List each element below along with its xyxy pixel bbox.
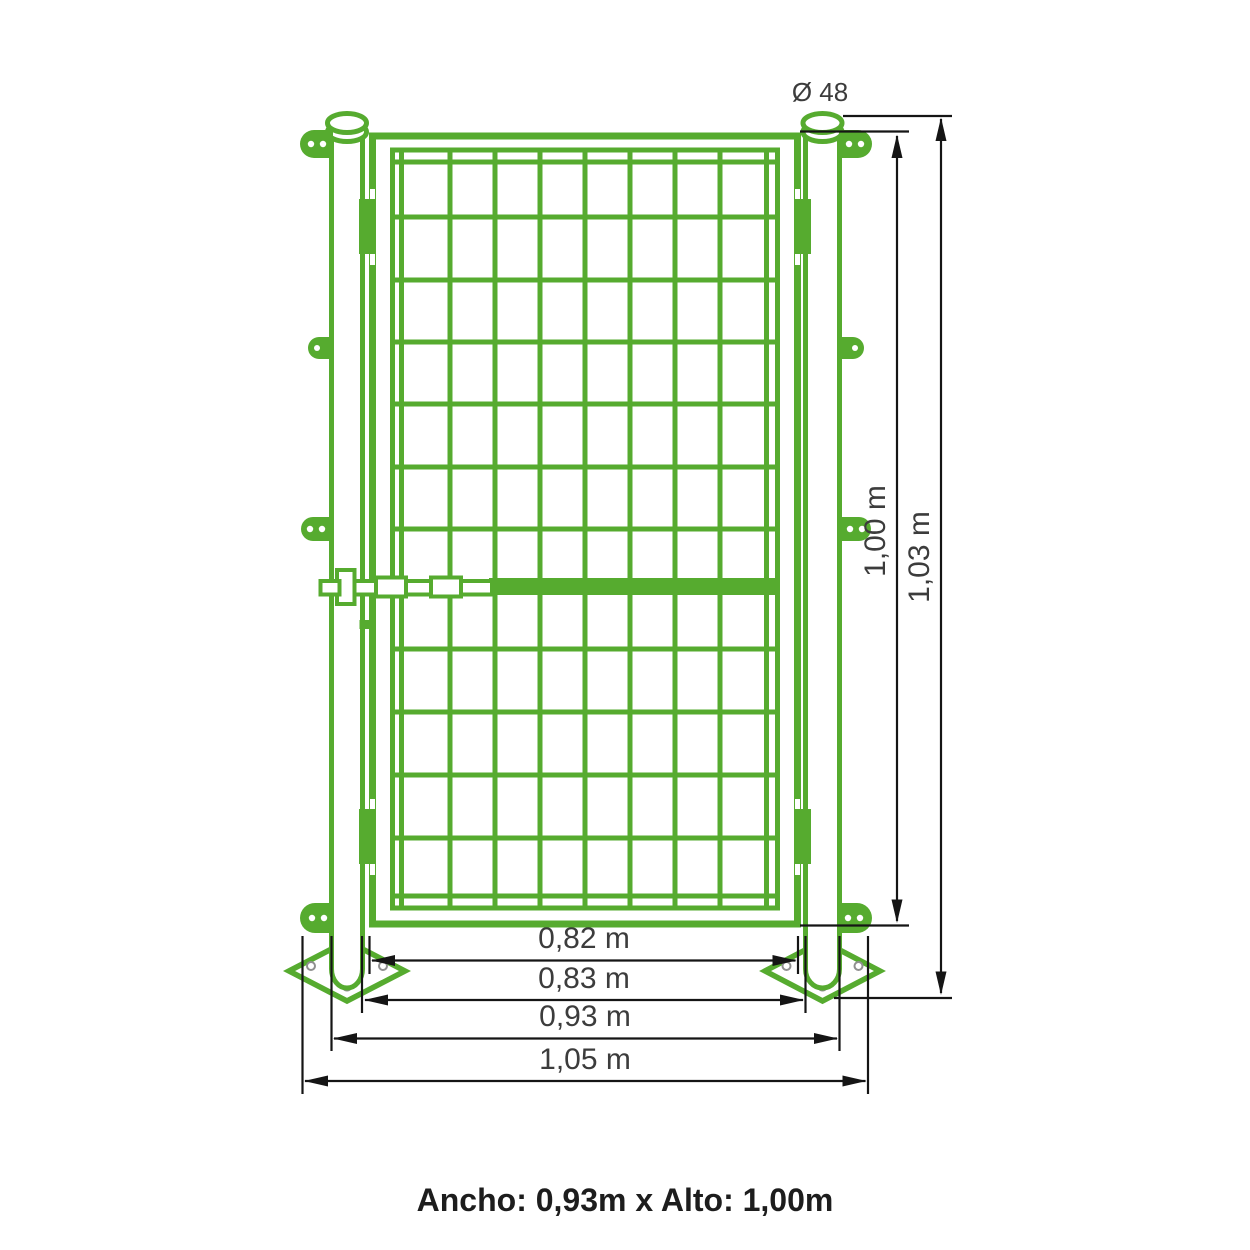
dimension-label-height-gate: 1,00 m [859, 485, 892, 577]
left-post-cap-top [328, 114, 367, 133]
bracket-hole [858, 141, 864, 147]
arrow-up [936, 118, 947, 142]
arrow-left [304, 1076, 328, 1087]
dimension-label-width-opening: 0,82 m [538, 922, 630, 955]
latch-rod [459, 581, 492, 595]
left-bottom-hinge [359, 809, 375, 864]
latch-keeper [360, 620, 375, 629]
arrow-up [892, 135, 903, 159]
left-post-bottom [332, 948, 363, 988]
dimension-label-height-total: 1,03 m [903, 511, 936, 603]
bracket-hole [847, 526, 853, 532]
bracket-hole [321, 915, 327, 921]
bracket-hole [309, 915, 315, 921]
arrow-right [843, 1076, 867, 1087]
arrow-right [814, 1033, 838, 1044]
right-single-hole-tab [839, 337, 864, 359]
dimension-label-width-total: 1,05 m [539, 1043, 631, 1076]
left-post-body [331, 132, 363, 960]
latch-assembly [321, 570, 778, 629]
page-title: Ancho: 0,93m x Alto: 1,00m [417, 1182, 834, 1218]
left-bottom-bracket [300, 903, 333, 933]
arrow-left [333, 1033, 357, 1044]
bracket-hole [314, 345, 320, 351]
left-top-hinge [359, 199, 375, 254]
right-bottom-hinge [795, 809, 811, 864]
post-diameter-label: Ø 48 [792, 77, 848, 107]
bracket-hole [845, 915, 851, 921]
plate-hole [855, 962, 863, 970]
right-post-cap-top [803, 114, 842, 133]
right-top-bracket [839, 130, 872, 158]
arrow-left [364, 995, 388, 1006]
left-single-hole-tab [308, 337, 333, 359]
arrow-down [936, 972, 947, 996]
right-post-bottom [806, 948, 840, 988]
bracket-hole [846, 141, 852, 147]
right-top-hinge [795, 199, 811, 254]
bracket-hole [857, 915, 863, 921]
mesh-panel [393, 150, 778, 908]
left-top-bracket [300, 130, 333, 158]
gate-dimension-diagram: 1,00 m 1,03 m 0,82 m 0,83 m 0,93 m 1,05 … [0, 0, 1250, 1250]
bracket-hole [307, 526, 313, 532]
bracket-hole [852, 345, 858, 351]
arrow-down [892, 900, 903, 924]
left-mid-bracket [301, 517, 333, 541]
dimension-label-width-between-posts: 0,83 m [538, 962, 630, 995]
middle-rail [489, 578, 778, 595]
plate-hole [307, 962, 315, 970]
bracket-hole [319, 526, 325, 532]
latch-guide-block [376, 578, 406, 597]
gate-dimension-diagram-page: 1,00 m 1,03 m 0,82 m 0,83 m 0,93 m 1,05 … [0, 0, 1250, 1250]
dimension-label-width-gate: 0,93 m [539, 1000, 631, 1033]
dimension-height-total: 1,03 m [834, 116, 952, 998]
left-post-brackets [300, 130, 333, 933]
right-bottom-bracket [839, 903, 872, 933]
bracket-hole [308, 141, 314, 147]
bracket-hole [320, 141, 326, 147]
latch-guide-block [431, 578, 461, 597]
arrow-right [780, 995, 804, 1006]
latch-handle-end [321, 581, 340, 595]
